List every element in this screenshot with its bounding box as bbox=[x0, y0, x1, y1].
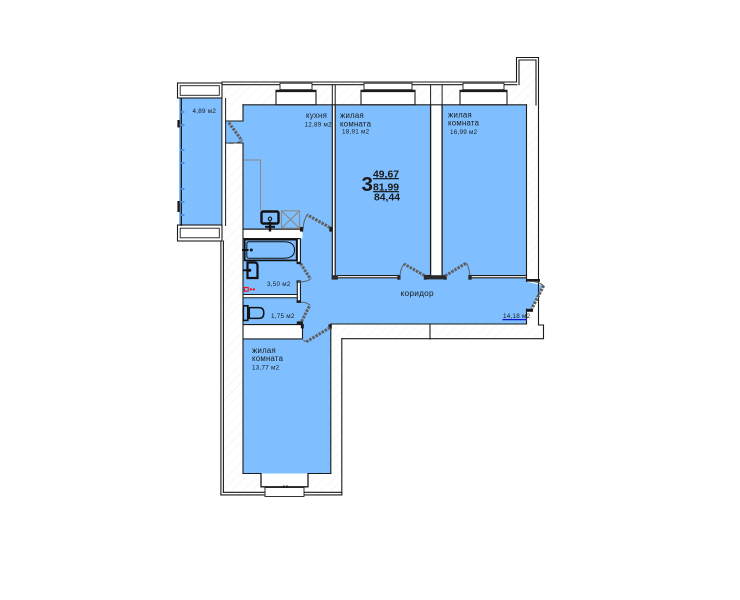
svg-text:1,75 м2: 1,75 м2 bbox=[271, 313, 295, 320]
svg-text:12,89 м2: 12,89 м2 bbox=[305, 121, 333, 128]
svg-text:18,91 м2: 18,91 м2 bbox=[342, 129, 370, 136]
svg-text:коридор: коридор bbox=[401, 288, 435, 298]
svg-text:3: 3 bbox=[362, 173, 373, 196]
svg-text:14,18 м2: 14,18 м2 bbox=[503, 313, 531, 320]
svg-text:кухня: кухня bbox=[306, 111, 327, 120]
svg-text:13,77 м2: 13,77 м2 bbox=[252, 365, 280, 372]
svg-text:комната: комната bbox=[340, 119, 372, 128]
svg-text:комната: комната bbox=[448, 119, 480, 128]
svg-text:16,99 м2: 16,99 м2 bbox=[450, 129, 478, 136]
svg-text:84,44: 84,44 bbox=[374, 193, 400, 204]
svg-text:3,50 м2: 3,50 м2 bbox=[267, 281, 291, 288]
svg-text:4,89 м2: 4,89 м2 bbox=[193, 108, 217, 115]
svg-text:комната: комната bbox=[252, 354, 284, 363]
